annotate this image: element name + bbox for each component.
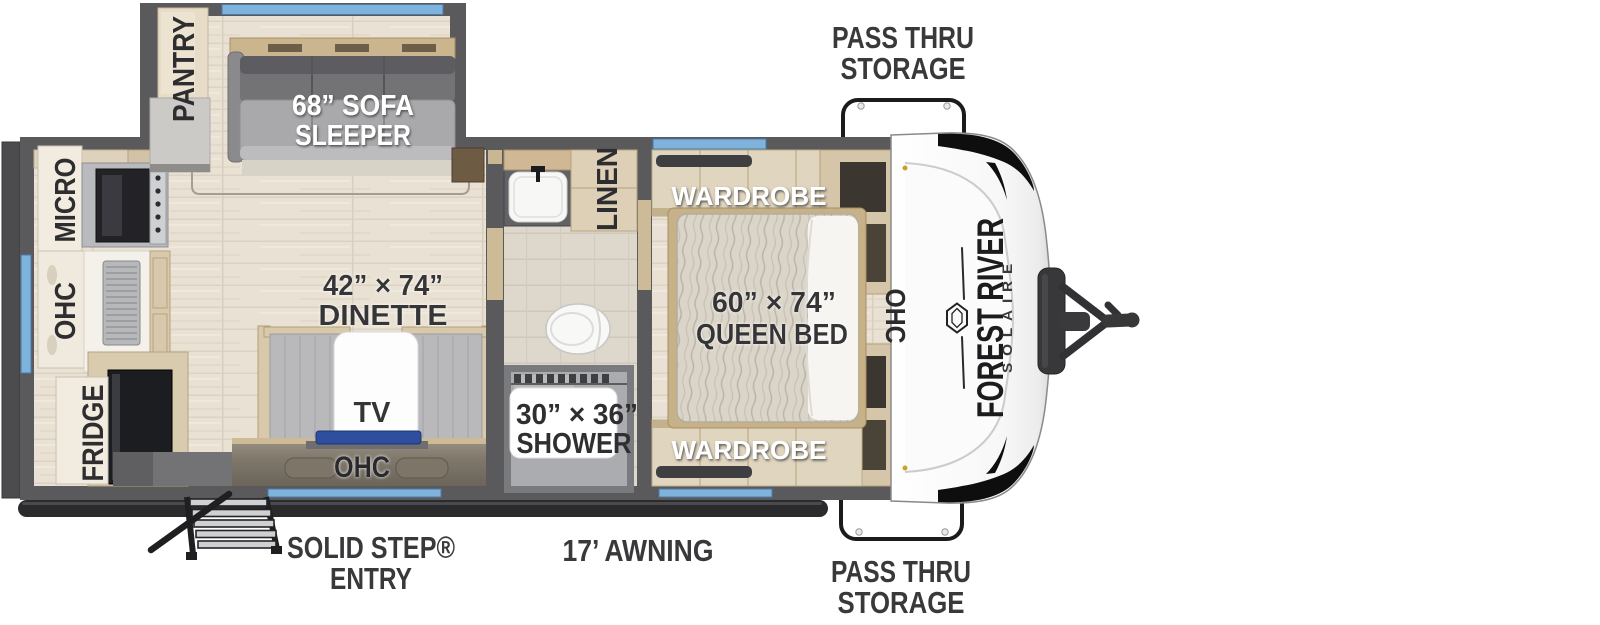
svg-text:OHC: OHC bbox=[334, 451, 390, 484]
svg-text:SHOWER: SHOWER bbox=[517, 428, 632, 460]
svg-text:PASS THRU: PASS THRU bbox=[832, 20, 974, 55]
svg-text:SLEEPER: SLEEPER bbox=[295, 120, 411, 152]
svg-text:ENTRY: ENTRY bbox=[330, 561, 412, 596]
svg-text:PANTRY: PANTRY bbox=[166, 16, 201, 122]
svg-text:SOLAIRE: SOLAIRE bbox=[1000, 257, 1015, 373]
svg-text:30” × 36”: 30” × 36” bbox=[516, 399, 638, 431]
svg-text:17’ AWNING: 17’ AWNING bbox=[563, 533, 714, 568]
svg-text:OHC: OHC bbox=[880, 289, 911, 344]
svg-text:WARDROBE: WARDROBE bbox=[672, 435, 827, 465]
svg-text:QUEEN BED: QUEEN BED bbox=[696, 319, 848, 351]
svg-text:68” SOFA: 68” SOFA bbox=[292, 90, 414, 122]
svg-text:MICRO: MICRO bbox=[50, 158, 82, 243]
svg-text:STORAGE: STORAGE bbox=[838, 585, 965, 620]
svg-text:DINETTE: DINETTE bbox=[319, 300, 448, 332]
svg-text:TV: TV bbox=[354, 397, 392, 429]
svg-text:OHC: OHC bbox=[50, 282, 82, 340]
svg-text:PASS THRU: PASS THRU bbox=[831, 554, 971, 589]
svg-text:STORAGE: STORAGE bbox=[841, 51, 966, 86]
svg-text:42” × 74”: 42” × 74” bbox=[323, 270, 443, 302]
svg-text:FRIDGE: FRIDGE bbox=[77, 385, 110, 482]
svg-text:SOLID STEP®: SOLID STEP® bbox=[287, 530, 455, 565]
svg-text:WARDROBE: WARDROBE bbox=[672, 181, 827, 211]
svg-text:LINEN: LINEN bbox=[592, 147, 624, 231]
svg-text:60” × 74”: 60” × 74” bbox=[712, 287, 836, 319]
